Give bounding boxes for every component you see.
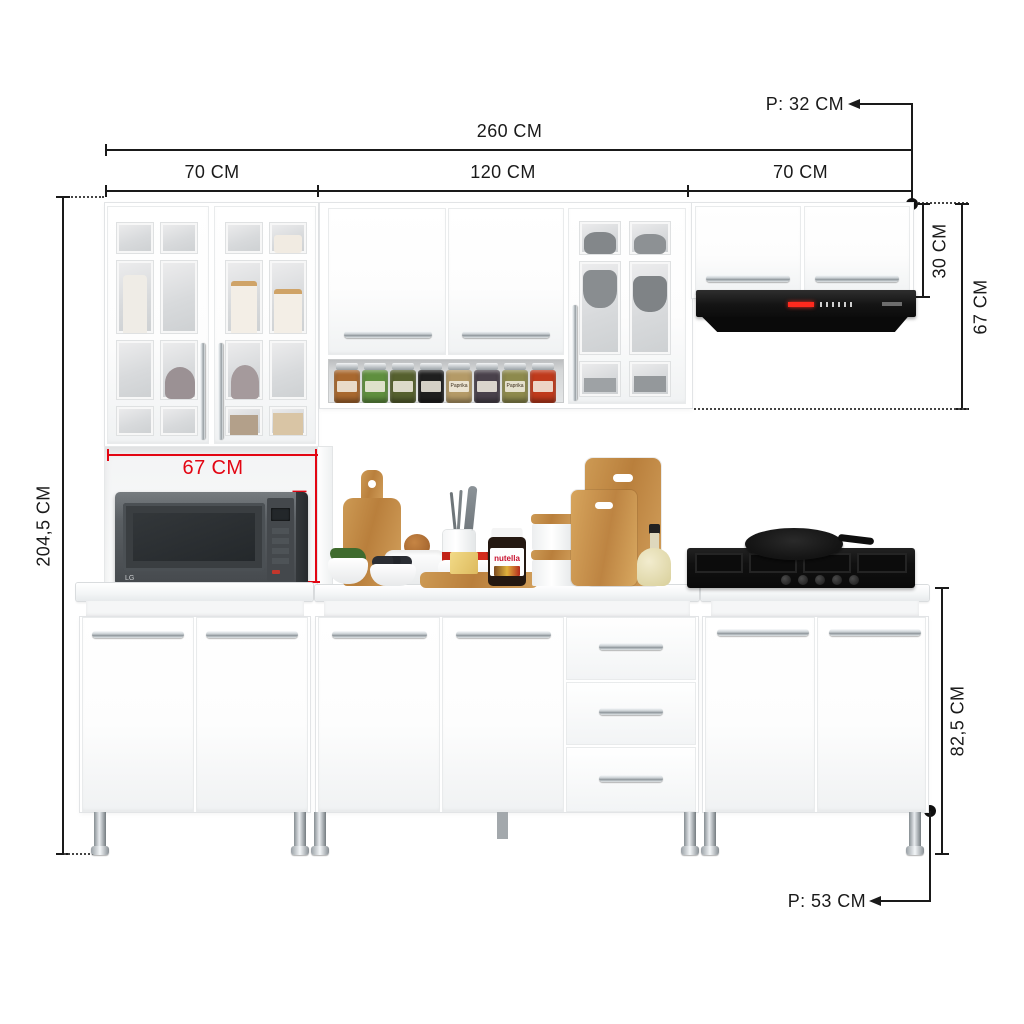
dim-upper-height-label: 67 CM <box>971 279 992 334</box>
glass-pane <box>630 222 670 254</box>
cooktop-knob[interactable] <box>815 575 825 585</box>
dim-total-height-label: 204,5 CM <box>34 485 55 566</box>
base-door[interactable] <box>442 617 564 812</box>
glass-pane <box>580 222 620 254</box>
base-top-rail <box>324 601 690 617</box>
microwave-side-panel <box>296 492 308 586</box>
burner-grate <box>857 553 907 573</box>
microwave-start-button[interactable] <box>272 570 280 574</box>
jar-label <box>533 381 553 392</box>
glass-pane <box>161 261 197 333</box>
base-cabinet-middle <box>316 617 698 812</box>
base-cabinet-right <box>703 617 928 812</box>
oil-cruet <box>637 524 671 586</box>
range-hood <box>696 290 916 317</box>
leg-foot <box>681 846 699 855</box>
plate-silhouette <box>634 376 666 392</box>
hood-logo <box>882 302 902 306</box>
spice-jar <box>390 363 416 403</box>
spice-jar <box>530 363 556 403</box>
middle-upper-cabinet: PaprikaPaprika <box>320 203 692 408</box>
cabinet-leg <box>684 812 696 848</box>
base-door[interactable] <box>817 617 926 812</box>
base-cabinet-left <box>80 617 310 812</box>
dim-total-width-label: 260 CM <box>106 121 913 142</box>
dim-total-line <box>106 149 913 151</box>
glass-pane <box>580 262 620 354</box>
glass-pane <box>226 223 262 253</box>
dim-leader-dotted <box>64 196 104 198</box>
dim-leader-dotted <box>694 408 968 410</box>
door-handle[interactable] <box>717 629 809 636</box>
jar-contents <box>418 370 444 403</box>
jar-lid <box>336 363 358 370</box>
base-door[interactable] <box>705 617 815 812</box>
jar-label <box>365 381 385 392</box>
base-door[interactable] <box>318 617 440 812</box>
leg-foot <box>311 846 329 855</box>
dim-base-depth-label: P: 53 CM <box>760 891 866 912</box>
glass-pane <box>270 341 306 399</box>
door-handle[interactable] <box>572 305 577 401</box>
dim-tick <box>105 144 107 156</box>
jar-contents: Paprika <box>446 370 472 403</box>
door-handle[interactable] <box>462 331 550 338</box>
glass-pane <box>226 341 262 399</box>
glass-pane <box>226 407 262 435</box>
jar-label <box>393 381 413 392</box>
box-silhouette <box>230 415 258 435</box>
dim-niche-width-label: 67 CM <box>108 457 318 480</box>
dim-niche-height-line <box>315 454 317 583</box>
jar-label: Paprika <box>449 381 469 392</box>
cooktop-knob[interactable] <box>798 575 808 585</box>
jar-contents <box>362 370 388 403</box>
jar-lid <box>448 363 470 370</box>
microwave-buttons[interactable] <box>272 528 289 568</box>
dim-total-height-line <box>62 197 64 855</box>
arrow-left-icon <box>869 896 881 906</box>
hutch-glass-door-right[interactable] <box>214 206 316 444</box>
microwave-window <box>133 513 255 561</box>
glass-pane <box>161 341 197 399</box>
cabinet-leg <box>294 812 306 848</box>
jar-label <box>421 381 441 392</box>
dim-base-height-label: 82,5 CM <box>948 686 969 757</box>
dim-tick <box>687 185 689 197</box>
glass-pane <box>270 223 306 253</box>
dim-tick <box>916 296 930 298</box>
dim-upper-height-line <box>961 204 963 410</box>
basket-silhouette <box>231 365 259 399</box>
jar-contents <box>390 370 416 403</box>
door-handle[interactable] <box>332 631 427 638</box>
door-handle[interactable] <box>92 631 184 638</box>
countertop-left <box>76 583 313 601</box>
jar-contents <box>530 370 556 403</box>
cabinet-leg <box>909 812 921 848</box>
spice-jar <box>418 363 444 403</box>
dim-hood-height-line <box>922 204 924 298</box>
dim-leader <box>880 900 931 902</box>
door-handle[interactable] <box>829 629 921 636</box>
bowl-silhouette <box>634 234 666 254</box>
dim-tick <box>955 203 969 205</box>
spice-jar <box>362 363 388 403</box>
basket-silhouette <box>165 367 195 399</box>
dim-tick <box>105 185 107 197</box>
leg-foot <box>291 846 309 855</box>
dim-leader <box>858 103 913 105</box>
door-handle[interactable] <box>206 631 298 638</box>
dim-upper-depth-label: P: 32 CM <box>738 94 844 115</box>
jar-label <box>337 381 357 392</box>
cabinet-leg <box>497 812 508 839</box>
dim-left-section-label: 70 CM <box>106 162 318 183</box>
glass-pane <box>270 407 306 435</box>
dim-sections-line <box>106 190 913 192</box>
cooktop-knob[interactable] <box>832 575 842 585</box>
canister-body <box>532 524 576 550</box>
door-handle[interactable] <box>200 343 205 440</box>
dim-base-height-line <box>941 588 943 855</box>
glass-pane <box>161 223 197 253</box>
hood-upper-cabinet <box>692 203 913 298</box>
base-top-rail <box>86 601 304 617</box>
jar-label <box>477 381 497 392</box>
cabinet-leg <box>314 812 326 848</box>
bowl-silhouette <box>633 276 667 312</box>
cabinet-leg <box>704 812 716 848</box>
microwave-control-panel[interactable] <box>267 498 294 581</box>
glass-pane <box>630 262 670 354</box>
bowl-silhouette <box>583 270 617 308</box>
door-handle[interactable] <box>218 343 223 440</box>
jar-contents: Paprika <box>502 370 528 403</box>
spice-jar: Paprika <box>502 363 528 403</box>
spice-jar <box>474 363 500 403</box>
microwave: LG <box>115 492 308 586</box>
jar-front-label: nutella <box>490 548 524 576</box>
nutella-jar: nutella <box>488 528 526 586</box>
label-art <box>494 566 520 576</box>
spice-jars: PaprikaPaprika <box>334 363 558 403</box>
drawer-handle[interactable] <box>599 643 663 650</box>
range-hood-base <box>698 317 912 332</box>
jar-lid <box>364 363 386 370</box>
bowl-olives <box>370 564 416 586</box>
glass-pane <box>117 261 153 333</box>
jar-contents <box>334 370 360 403</box>
cruet-body <box>637 548 671 586</box>
spice-jar <box>334 363 360 403</box>
glass-pane <box>117 407 153 435</box>
door-handle[interactable] <box>344 331 432 338</box>
jar-lid <box>476 363 498 370</box>
leg-foot <box>906 846 924 855</box>
door-handle[interactable] <box>815 275 899 282</box>
dim-leader <box>911 104 913 204</box>
hood-buttons[interactable] <box>820 302 854 307</box>
jar-contents <box>474 370 500 403</box>
cooktop-knob[interactable] <box>849 575 859 585</box>
glass-pane <box>270 261 306 333</box>
glass-pane <box>117 341 153 399</box>
nutella-wordmark: nutella <box>494 554 520 563</box>
base-door[interactable] <box>82 617 194 812</box>
canister-body <box>532 560 576 586</box>
hutch-glass-door-left[interactable] <box>107 206 209 444</box>
glass-pane <box>226 261 262 333</box>
cheese-cube <box>450 552 478 574</box>
hood-display <box>788 302 814 307</box>
board-hole <box>368 480 376 488</box>
door-handle[interactable] <box>706 275 790 282</box>
canister-silhouette <box>123 275 147 333</box>
jar-lid <box>532 363 554 370</box>
drawer-handle[interactable] <box>599 708 663 715</box>
dim-leader <box>929 811 931 902</box>
burner-grate <box>695 553 743 573</box>
board-slot <box>613 474 633 482</box>
jar-lid <box>392 363 414 370</box>
glass-pane <box>630 362 670 396</box>
jar-lid <box>504 363 526 370</box>
base-top-rail <box>711 601 919 617</box>
cabinet-leg <box>94 812 106 848</box>
middle-upper-glass-door[interactable] <box>568 208 686 404</box>
door-handle[interactable] <box>456 631 551 638</box>
box-silhouette <box>273 413 303 435</box>
dim-right-section-label: 70 CM <box>688 162 913 183</box>
microwave-display <box>271 508 290 521</box>
dim-hood-height-label: 30 CM <box>930 223 951 278</box>
cooktop-knob[interactable] <box>781 575 791 585</box>
microwave-brand-logo: LG <box>125 575 134 582</box>
leg-foot <box>91 846 109 855</box>
frying-pan <box>745 528 843 560</box>
kitchen-dimension-diagram: 260 CM 70 CM 120 CM 70 CM P: 32 CM 30 CM… <box>0 0 1024 1024</box>
cutting-board-small <box>571 490 637 586</box>
plate-silhouette <box>584 378 616 392</box>
jar-label: Paprika <box>505 381 525 392</box>
canister-silhouette <box>274 289 302 333</box>
glass-pane <box>161 407 197 435</box>
canister-silhouette <box>231 281 257 333</box>
dim-niche-width-line <box>108 454 318 456</box>
board-slot <box>595 502 613 509</box>
glass-pane <box>117 223 153 253</box>
drawer-handle[interactable] <box>599 775 663 782</box>
dim-tick <box>935 853 949 855</box>
pan-handle <box>838 534 875 545</box>
dim-middle-section-label: 120 CM <box>318 162 688 183</box>
bowl-silhouette <box>584 232 616 254</box>
hutch-upper-cabinet <box>105 203 318 447</box>
dim-tick <box>317 185 319 197</box>
canister-silhouette <box>274 235 302 253</box>
knife-icon <box>464 486 478 535</box>
glass-pane <box>580 362 620 396</box>
leg-foot <box>701 846 719 855</box>
jar-lid <box>420 363 442 370</box>
base-door[interactable] <box>196 617 308 812</box>
spice-jar: Paprika <box>446 363 472 403</box>
